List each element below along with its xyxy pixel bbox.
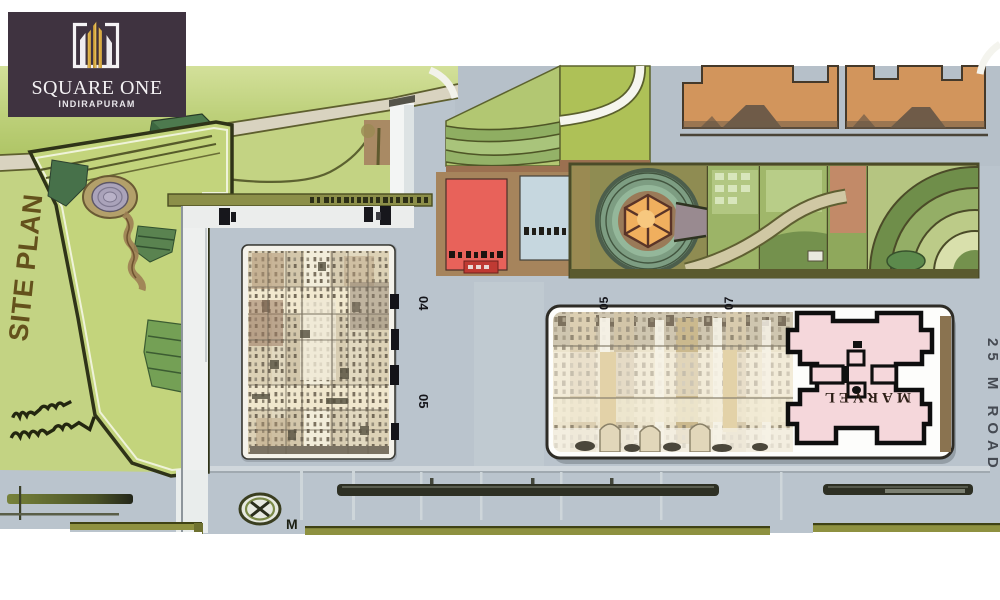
- svg-text:05: 05: [597, 296, 611, 310]
- svg-text:INDIRAPURAM: INDIRAPURAM: [58, 99, 135, 109]
- svg-text:MARVEL: MARVEL: [821, 389, 911, 405]
- svg-text:07: 07: [722, 296, 736, 310]
- svg-text:M: M: [286, 516, 298, 532]
- svg-text:04: 04: [416, 296, 431, 311]
- svg-text:25 M ROAD: 25 M ROAD: [984, 338, 1000, 474]
- svg-text:SQUARE ONE: SQUARE ONE: [31, 77, 162, 99]
- svg-text:05: 05: [416, 394, 431, 408]
